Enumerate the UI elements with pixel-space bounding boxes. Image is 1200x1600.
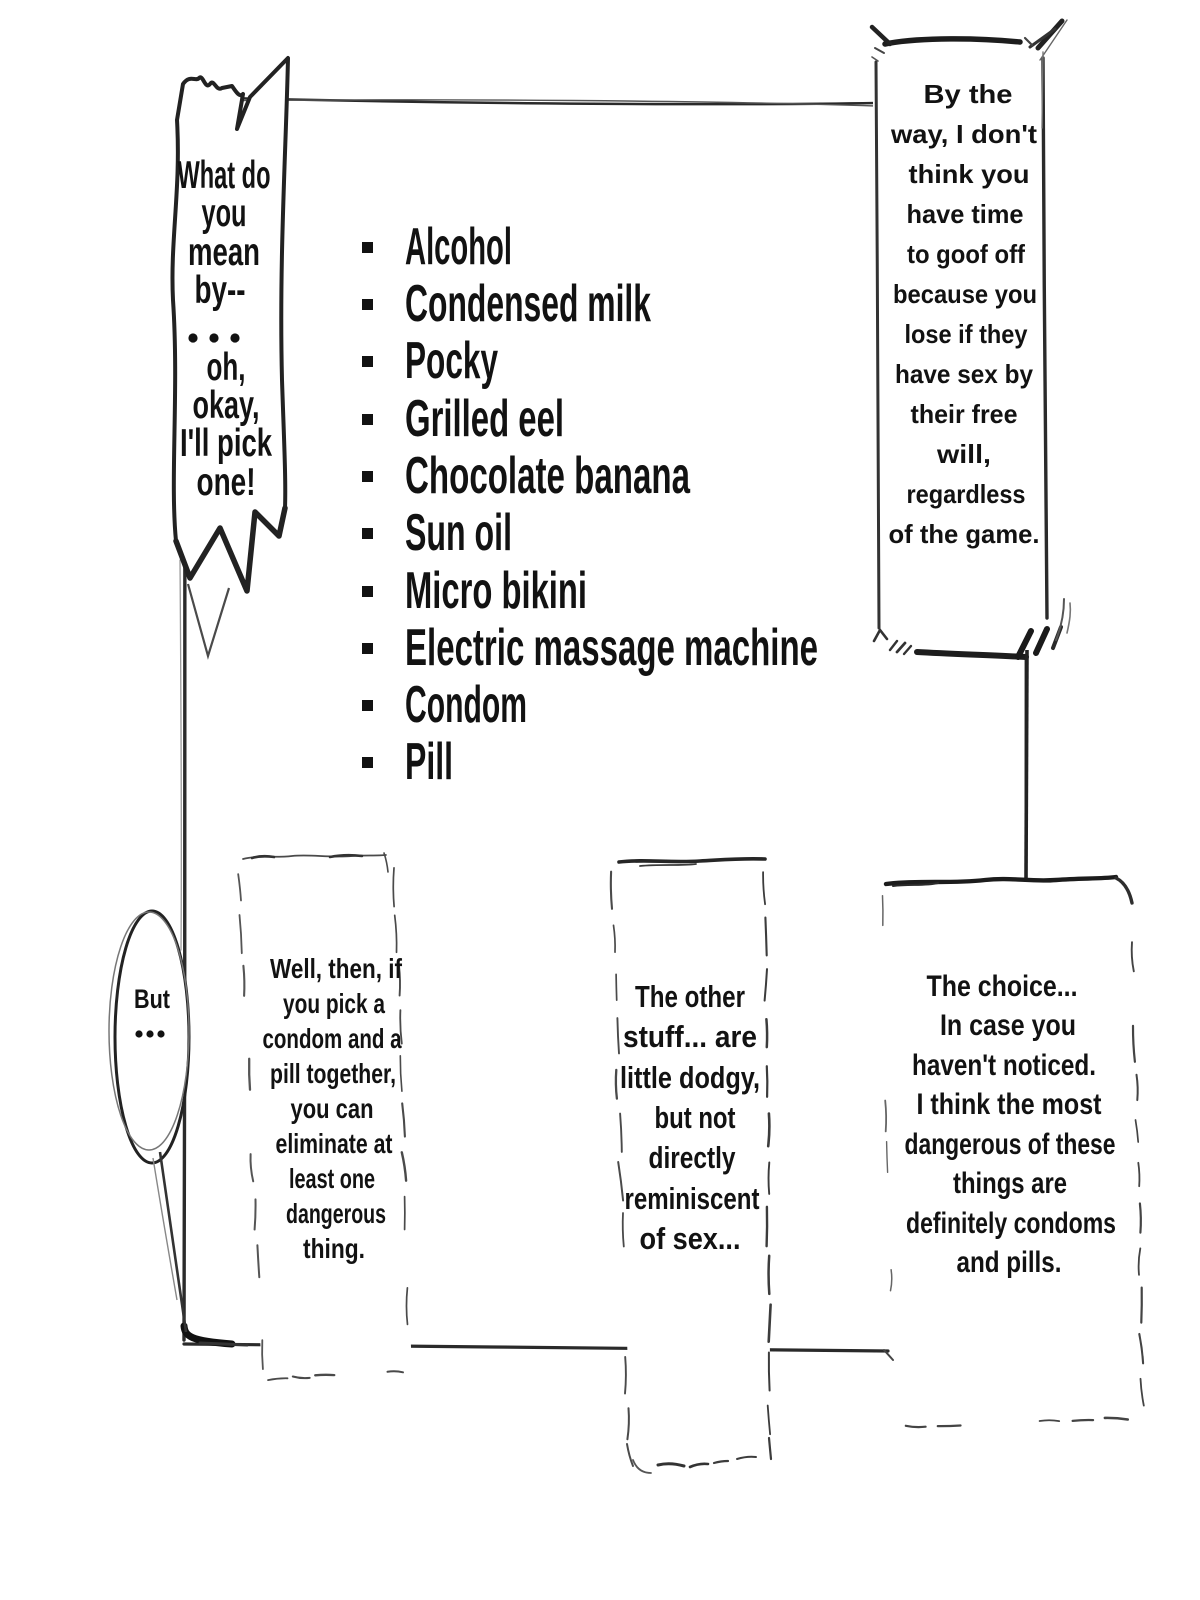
svg-text:haven't noticed.: haven't noticed.: [912, 1049, 1096, 1082]
svg-text:dangerous of these: dangerous of these: [905, 1128, 1116, 1161]
svg-text:reminiscent: reminiscent: [625, 1181, 760, 1216]
svg-text:By the: By the: [924, 79, 1013, 109]
svg-text:lose if they: lose if they: [905, 319, 1028, 349]
svg-text:Condensed milk: Condensed milk: [405, 275, 651, 333]
svg-text:regardless: regardless: [907, 479, 1026, 509]
svg-text:least one: least one: [289, 1163, 375, 1194]
svg-text:have sex by: have sex by: [895, 359, 1033, 389]
svg-text:okay,: okay,: [193, 384, 260, 427]
svg-text:pill together,: pill together,: [270, 1058, 396, 1089]
svg-text:Condom: Condom: [405, 676, 527, 734]
svg-text:of sex...: of sex...: [640, 1221, 741, 1256]
svg-text:Pill: Pill: [405, 733, 453, 791]
svg-text:The other: The other: [635, 979, 745, 1014]
svg-text:directly: directly: [649, 1140, 737, 1175]
svg-text:The choice...: The choice...: [927, 970, 1078, 1003]
svg-text:definitely condoms: definitely condoms: [906, 1207, 1116, 1240]
svg-text:things are: things are: [953, 1167, 1067, 1200]
svg-text:will,: will,: [936, 439, 991, 469]
svg-text:to goof off: to goof off: [907, 239, 1025, 269]
svg-text:way, I don't: way, I don't: [890, 119, 1037, 149]
svg-text:But: But: [134, 984, 170, 1014]
svg-text:dangerous: dangerous: [286, 1198, 386, 1229]
svg-text:I'll pick: I'll pick: [180, 422, 272, 465]
svg-text:Micro bikini: Micro bikini: [405, 562, 587, 620]
svg-text:little dodgy,: little dodgy,: [620, 1060, 760, 1095]
svg-text:of the game.: of the game.: [889, 519, 1040, 549]
svg-text:oh,: oh,: [207, 346, 246, 389]
svg-text:I think the most: I think the most: [917, 1088, 1102, 1121]
svg-text:Electric massage machine: Electric massage machine: [405, 619, 818, 677]
svg-text:you: you: [202, 192, 247, 235]
svg-text:think you: think you: [909, 159, 1030, 189]
svg-text:one!: one!: [197, 461, 256, 504]
svg-text:you pick a: you pick a: [283, 988, 385, 1019]
svg-text:you can: you can: [291, 1093, 374, 1124]
svg-text:but not: but not: [655, 1100, 736, 1135]
svg-text:and pills.: and pills.: [957, 1246, 1062, 1279]
svg-text:have time: have time: [907, 199, 1024, 229]
svg-text:What do: What do: [178, 154, 271, 197]
svg-text:Sun oil: Sun oil: [405, 504, 512, 562]
svg-text:Alcohol: Alcohol: [405, 218, 512, 276]
svg-text:In case you: In case you: [940, 1009, 1076, 1042]
svg-text:Chocolate banana: Chocolate banana: [405, 447, 691, 505]
svg-text:because you: because you: [893, 279, 1037, 309]
svg-text:thing.: thing.: [303, 1233, 365, 1264]
svg-text:stuff... are: stuff... are: [623, 1019, 757, 1054]
svg-text:Grilled eel: Grilled eel: [405, 390, 564, 448]
svg-text:eliminate at: eliminate at: [276, 1128, 393, 1159]
svg-text:Well, then, if: Well, then, if: [270, 953, 403, 984]
svg-text:Pocky: Pocky: [405, 332, 498, 390]
svg-text:their free: their free: [911, 399, 1018, 429]
svg-text:by--: by--: [195, 269, 246, 312]
svg-text:condom and a: condom and a: [263, 1023, 402, 1054]
svg-text:mean: mean: [188, 231, 260, 274]
